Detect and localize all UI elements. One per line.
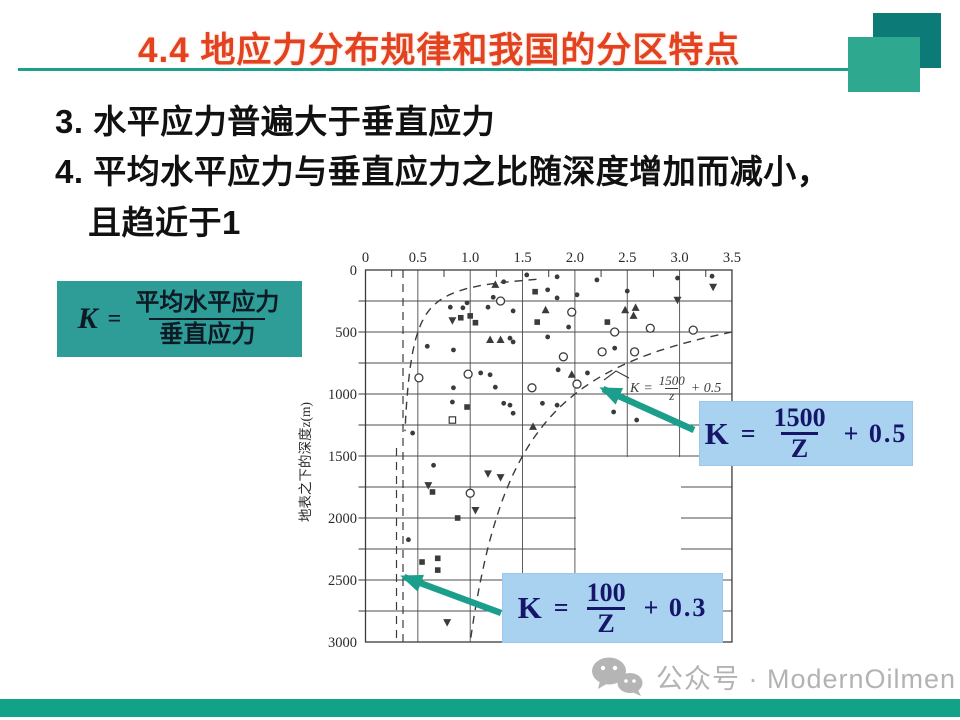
svg-text:1.5: 1.5 [513,250,531,266]
svg-text:2.5: 2.5 [618,250,636,266]
annotation-suffix: + 0.5 [691,381,721,397]
curve-formula-annotation: K = 1500 z + 0.5 [630,374,721,404]
page-title: 4.4 地应力分布规律和我国的分区特点 [138,22,740,73]
bottom-bar [0,699,960,717]
equals-sign: = [108,306,122,333]
title-underline [18,68,848,71]
k-definition-formula-box: K = 平均水平应力 垂直应力 [57,281,302,357]
svg-text:0: 0 [350,263,357,279]
svg-text:0: 0 [362,250,369,266]
k-variable: K [78,302,98,336]
watermark: 公众号 · ModernOilmen [588,656,956,696]
bullet-4: 4. 平均水平应力与垂直应力之比随深度增加而减小， [55,145,830,193]
bullet-4-continued: 且趋近于1 [88,196,241,244]
svg-text:2.0: 2.0 [566,250,584,266]
svg-text:3000: 3000 [328,635,357,651]
svg-text:500: 500 [335,325,357,341]
fraction: 平均水平应力 垂直应力 [131,290,283,349]
svg-text:1500: 1500 [328,449,357,465]
svg-text:1.0: 1.0 [461,250,479,266]
formula-box-1500: K = 1500 Z + 0.5 [699,401,913,466]
slide: 4.4 地应力分布规律和我国的分区特点 3. 水平应力普遍大于垂直应力 4. 平… [0,0,960,720]
fraction-denominator: 垂直应力 [149,318,265,348]
annotation-fraction: 1500 z [657,374,687,404]
bullet-3: 3. 水平应力普遍大于垂直应力 [55,95,495,143]
svg-text:地表之下的深度z(m): 地表之下的深度z(m) [298,402,313,522]
wechat-icon [588,656,646,696]
svg-text:2000: 2000 [328,511,357,527]
arrow-to-lower-curve [404,577,501,613]
watermark-text: 公众号 · ModernOilmen [656,657,956,696]
annotation-k: K [630,381,639,397]
annotation-equals: = [643,381,652,397]
svg-text:0.5: 0.5 [409,250,427,266]
svg-text:1000: 1000 [328,387,357,403]
fraction-numerator: 平均水平应力 [131,290,283,318]
decor-square-light [848,37,920,92]
svg-text:3.0: 3.0 [671,250,689,266]
formula-box-100: K = 100 Z + 0.3 [502,573,723,643]
svg-text:2500: 2500 [328,573,357,589]
svg-text:3.5: 3.5 [723,250,741,266]
